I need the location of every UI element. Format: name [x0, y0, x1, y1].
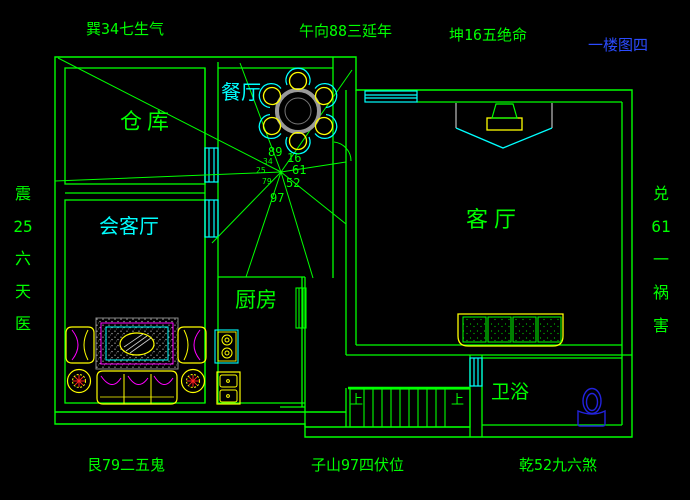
room-label-dining: 餐厅	[221, 82, 261, 102]
fengshui-number-79: 79	[262, 178, 272, 186]
compass-label-top-center: 午向88三延年	[299, 24, 392, 39]
plant-table-right	[182, 370, 205, 393]
reception-rug	[96, 318, 178, 369]
toilet-icon	[578, 389, 605, 427]
compass-label-right: 兑 61 一 祸 害	[648, 186, 674, 334]
armchair-right	[178, 327, 206, 363]
room-label-reception: 会客厅	[99, 216, 159, 236]
compass-label-left: 震 25 六 天 医	[10, 186, 36, 332]
drawing-title: 一楼图四	[588, 38, 648, 53]
compass-right-char: 一	[653, 252, 669, 268]
compass-label-bottom-right: 乾52九六煞	[519, 458, 597, 473]
compass-right-char: 害	[653, 318, 669, 334]
room-label-living: 客厅	[466, 210, 522, 232]
compass-left-char: 六	[15, 251, 31, 267]
armchair-left	[66, 327, 94, 363]
room-label-kitchen: 厨房	[235, 290, 277, 311]
window-storage-dining	[205, 148, 218, 182]
floor-plan-canvas[interactable]	[0, 0, 690, 500]
reception-sofa	[97, 371, 177, 404]
window-reception-dining	[205, 200, 218, 237]
compass-left-char: 25	[13, 219, 32, 235]
cad-floorplan-viewport[interactable]: 巽34七生气 午向88三延年 坤16五绝命 一楼图四 震 25 六 天 医 兑 …	[0, 0, 690, 500]
fengshui-number-25: 25	[256, 167, 266, 175]
dining-table-set	[255, 68, 341, 154]
room-label-bathroom: 卫浴	[491, 383, 529, 402]
living-sofa	[458, 314, 563, 346]
compass-label-bottom-left: 艮79二五鬼	[87, 458, 165, 473]
compass-left-char: 天	[15, 284, 31, 300]
compass-right-char: 祸	[653, 285, 669, 301]
compass-right-char: 兑	[653, 186, 669, 202]
tv-cabinet	[456, 103, 552, 148]
sink-icon	[217, 372, 240, 404]
compass-left-char: 医	[15, 316, 31, 332]
fengshui-number-52: 52	[286, 177, 300, 189]
window-living-top	[365, 91, 417, 102]
windows	[205, 91, 482, 386]
plant-table-left	[68, 370, 91, 393]
compass-label-top-right: 坤16五绝命	[449, 28, 527, 43]
compass-label-bottom-center: 子山97四伏位	[311, 458, 404, 473]
room-label-storage: 仓库	[120, 112, 174, 134]
fengshui-number-34: 34	[263, 158, 273, 166]
fengshui-number-61: 61	[292, 164, 306, 176]
compass-label-top-left: 巽34七生气	[86, 22, 164, 37]
stairs-up-label-left: 上	[350, 394, 363, 407]
stove-icon	[215, 330, 238, 363]
compass-right-char: 61	[651, 219, 670, 235]
window-bathroom	[470, 358, 482, 386]
fengshui-number-97: 97	[270, 192, 284, 204]
stairs-up-label-right: 上	[451, 394, 464, 407]
compass-left-char: 震	[15, 186, 31, 202]
